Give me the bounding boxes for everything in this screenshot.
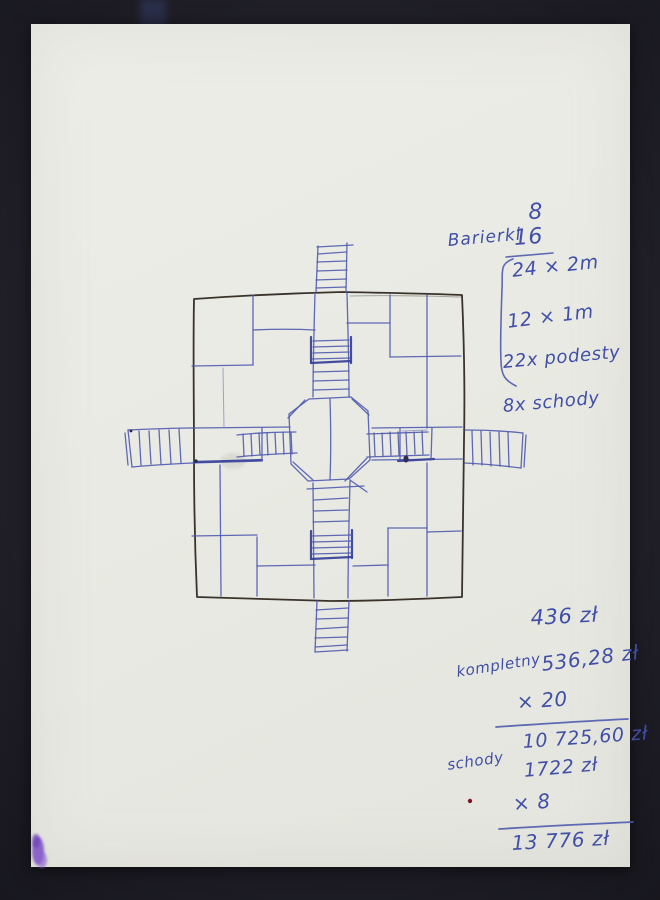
scanned-sketch-page: 8 Barierki 16 24 × 2m 12 × 1m 22x podest…	[0, 0, 660, 900]
note-qty-16: 16	[513, 224, 544, 251]
note-qty-8: 8	[528, 199, 543, 224]
calc-times-20: × 20	[516, 686, 569, 713]
calc-total: 13 776 zł	[511, 826, 610, 855]
calc-times-8: × 8	[512, 789, 552, 816]
calc-price-436: 436 zł	[530, 602, 599, 629]
